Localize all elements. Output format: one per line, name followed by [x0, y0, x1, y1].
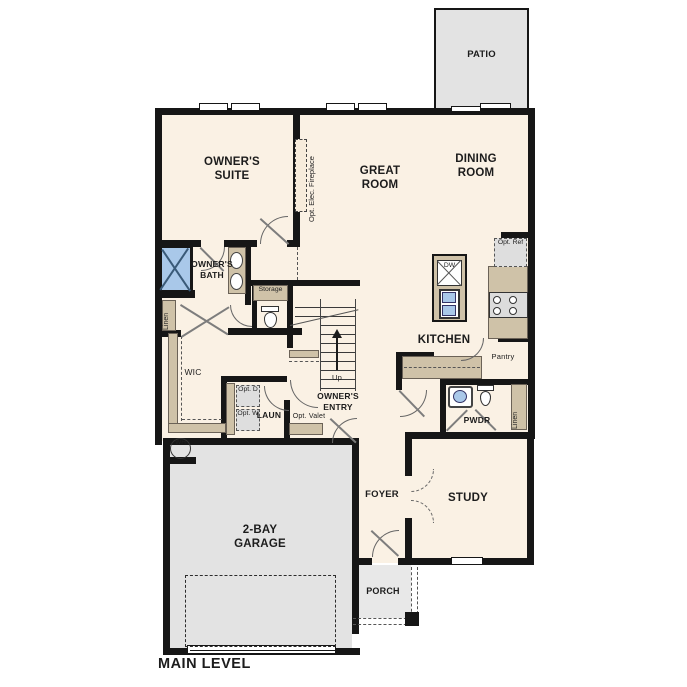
sliding-door-icon — [451, 106, 481, 112]
dashed-line — [182, 419, 222, 420]
pantry-label: Pantry — [482, 352, 524, 361]
window-icon — [358, 103, 387, 111]
kitchen-label: KITCHEN — [412, 333, 476, 347]
dashed-line — [289, 361, 319, 362]
burner-icon — [509, 296, 517, 304]
great-room-label: GREAT ROOM — [347, 164, 413, 193]
shape — [442, 292, 456, 303]
wall-segment — [528, 108, 535, 438]
water-heater-icon: WH — [170, 438, 191, 459]
dw-label: DW — [438, 262, 461, 269]
wall-segment — [527, 438, 534, 565]
storage-closet: Storage — [253, 285, 288, 301]
opt-fireplace-label: Opt. Elec. Fireplace — [307, 126, 320, 222]
wic-shelf — [168, 423, 226, 433]
wall-segment — [163, 438, 359, 445]
shape — [453, 390, 467, 403]
opt-valet-label: Opt. Valet — [287, 413, 331, 422]
burner-icon — [509, 307, 517, 315]
wall-segment — [163, 438, 170, 655]
dishwasher-icon: DW — [437, 260, 462, 286]
foyer-label: FOYER — [358, 489, 406, 501]
sliding-door-icon — [480, 103, 511, 109]
shape — [332, 329, 342, 338]
window-icon — [451, 557, 483, 565]
wall-segment — [405, 518, 412, 565]
wall-segment — [221, 376, 287, 382]
garage-label: 2-BAY GARAGE — [225, 523, 295, 552]
porch-label: PORCH — [358, 586, 408, 597]
wall-segment — [224, 240, 257, 247]
owners-entry-label: OWNER'S ENTRY — [310, 391, 366, 412]
linen-closet-bath: Linen — [162, 300, 176, 331]
laundry-cabinet — [226, 383, 235, 435]
opt-fireplace-box — [295, 139, 307, 212]
floor-plan: Linen Storage Up Opt. D Opt. W DW Opt. R… — [0, 0, 687, 687]
pwdr-label: PWDR — [455, 415, 499, 426]
cased-opening-dash — [297, 247, 298, 280]
dashed-line — [181, 336, 182, 421]
dashed-line — [404, 367, 480, 368]
porch-dash — [411, 567, 412, 617]
burner-icon — [493, 307, 501, 315]
stairs-up-label: Up — [325, 373, 349, 383]
owners-suite-label: OWNER'S SUITE — [187, 155, 277, 184]
garage-ceiling-dash — [185, 575, 336, 647]
pwdr-vanity — [448, 386, 473, 408]
wic-shelf — [168, 333, 178, 433]
main-level-title: MAIN LEVEL — [158, 655, 318, 673]
window-icon — [199, 103, 228, 111]
linen-closet-hall: Linen — [511, 384, 527, 430]
wall-segment — [190, 650, 335, 651]
window-icon — [326, 103, 355, 111]
laundry-label: LAUN — [250, 410, 288, 421]
wic-label: WIC — [176, 367, 210, 378]
shape — [336, 337, 338, 370]
study-label: STUDY — [438, 491, 498, 505]
burner-icon — [493, 296, 501, 304]
owners-bath-label: OWNER'S BATH — [186, 259, 238, 280]
opt-valet-bench — [289, 423, 323, 435]
wall-segment — [440, 379, 446, 432]
opt-dryer-box: Opt. D — [236, 385, 260, 407]
porch-post — [405, 612, 419, 626]
island-sink-icon — [439, 289, 460, 319]
window-icon — [231, 103, 260, 111]
wall-segment — [352, 558, 372, 565]
wall-segment — [405, 432, 535, 439]
understair-cabinet — [289, 350, 319, 358]
opt-refrigerator-box: Opt. Ref — [494, 238, 527, 267]
dining-room-label: DINING ROOM — [445, 152, 507, 181]
patio-label: PATIO — [434, 49, 529, 61]
shape — [442, 305, 456, 316]
wall-segment — [352, 438, 359, 634]
range-icon — [489, 292, 528, 318]
